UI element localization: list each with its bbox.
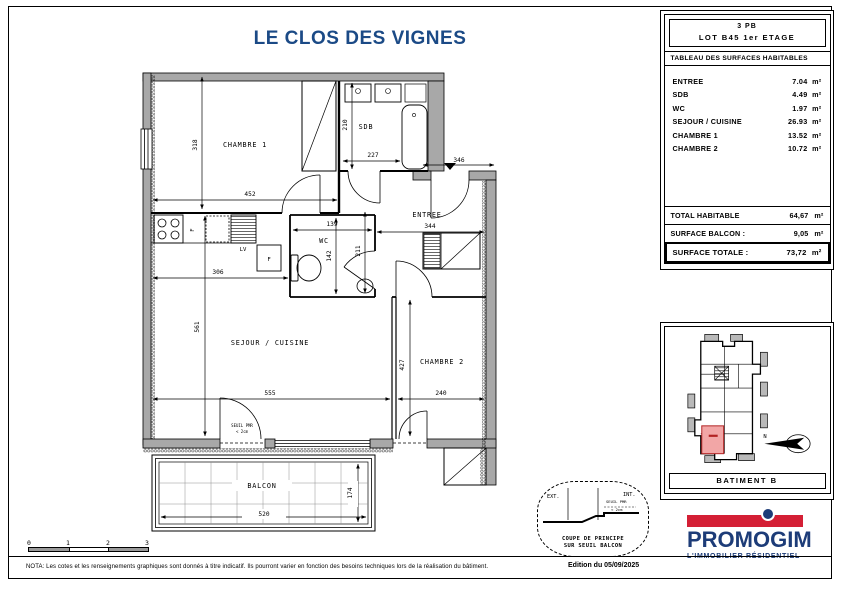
bathtub-icon: [402, 105, 427, 169]
scale-tick-3: 3: [145, 539, 149, 547]
dim-chambre2-width: 240: [435, 390, 446, 397]
washbasin-icon: [345, 84, 371, 102]
dim-sejour-height: 561: [194, 321, 201, 332]
exterior-walls: [143, 73, 496, 485]
coupe-note-2: < 2cm: [611, 507, 623, 512]
compass-icon: N: [763, 433, 810, 452]
seuil-note-1: SEUIL PMR: [231, 423, 253, 428]
stairwell-icon: [714, 366, 728, 380]
toilet-bowl-icon: [297, 255, 321, 281]
table-header: TABLEAU DES SURFACES HABITABLES: [665, 51, 830, 66]
scale-tick-1: 1: [66, 539, 70, 547]
scale-tick-2: 2: [106, 539, 110, 547]
scale-bar-labels: 0 1 2 3: [28, 539, 154, 547]
coupe-ext-label: EXT.: [547, 494, 560, 500]
coupe-int-label: INT.: [623, 492, 636, 498]
dim-wc-width: 139: [326, 221, 337, 228]
dim-sdb-width: 227: [367, 152, 378, 159]
table-row: WC 1.97 m²: [673, 102, 822, 116]
table-row: ENTREE 7.04 m²: [673, 75, 822, 89]
corner-structure: [444, 448, 486, 485]
total-habitable-row: TOTAL HABITABLE 64,67 m²: [665, 206, 830, 224]
page-title: LE CLOS DES VIGNES: [130, 28, 590, 50]
room-label-balcon: BALCON: [247, 482, 276, 490]
dim-entrance-door: 346: [453, 157, 464, 164]
surface-table-panel: 3 PB LOT B45 1er ETAGE TABLEAU DES SURFA…: [660, 10, 834, 270]
coupe-drawing: EXT. INT. SEUIL PMR < 2cm: [538, 485, 644, 531]
dim-balcon-height: 174: [347, 487, 354, 498]
chambre1-window: [141, 129, 152, 169]
oven-label: F: [190, 228, 196, 232]
sejour-window: [275, 439, 370, 448]
scale-bar-segments: [28, 547, 149, 552]
room-label-entree: ENTREE: [412, 211, 441, 219]
lot-header: 3 PB LOT B45 1er ETAGE: [669, 19, 826, 47]
room-label-sdb: SDB: [359, 123, 374, 131]
room-label-chambre2: CHAMBRE 2: [420, 358, 464, 366]
dim-entree-height: 211: [355, 245, 362, 256]
dishwasher-label: LV: [240, 247, 247, 253]
dim-balcon-width: 520: [258, 511, 269, 518]
surface-balcon-row: SURFACE BALCON : 9,05 m²: [665, 224, 830, 242]
dim-chambre1-width: 452: [244, 191, 255, 198]
scale-tick-0: 0: [27, 539, 31, 547]
totals-section: TOTAL HABITABLE 64,67 m² SURFACE BALCON …: [665, 206, 830, 263]
doors: [220, 163, 469, 443]
table-row: CHAMBRE 2 10.72 m²: [673, 142, 822, 156]
sdb-fixtures: [345, 84, 427, 169]
dim-wc-height: 142: [326, 250, 333, 261]
highlighted-unit: [701, 425, 723, 453]
coupe-detail: EXT. INT. SEUIL PMR < 2cm COUPE DE PRINC…: [537, 481, 649, 557]
footer-strip: NOTA: Les cotes et les renseignements gr…: [8, 556, 832, 579]
dim-cuisine-width: 306: [212, 269, 223, 276]
dim-sdb-height: 210: [342, 119, 349, 130]
entree-closet: [423, 233, 480, 269]
edition-date: Edition du 05/09/2025: [568, 562, 639, 569]
promogim-logo: PROMOGIM L'IMMOBILIER RÉSIDENTIEL: [687, 515, 803, 560]
coupe-note-1: SEUIL PMR: [606, 499, 627, 504]
oven-icon: [206, 216, 229, 242]
dim-chambre2-height: 427: [399, 359, 406, 370]
entrance-threshold-icon: [444, 163, 456, 170]
table-row: SDB 4.49 m²: [673, 88, 822, 102]
lot-type: 3 PB: [670, 23, 825, 30]
room-label-chambre1: CHAMBRE 1: [223, 141, 267, 149]
dim-entree-width: 344: [424, 223, 435, 230]
compass-north-label: N: [763, 433, 766, 439]
balcony: [152, 455, 375, 531]
table-row: CHAMBRE 1 13.52 m²: [673, 129, 822, 143]
kitchen-fixtures: [151, 215, 281, 271]
surface-rows: ENTREE 7.04 m² SDB 4.49 m² WC 1.97 m² SE…: [665, 66, 830, 156]
seuil-note-2: < 2cm: [236, 429, 249, 434]
coupe-caption-2: SUR SEUIL BALCON: [538, 543, 648, 550]
logo-red-bar: [687, 515, 803, 527]
logo-brand: PROMOGIM: [687, 529, 803, 551]
site-plan-panel: N BATIMENT B: [660, 322, 834, 500]
dishwasher-icon: [231, 215, 256, 243]
site-plan-map: N: [665, 327, 830, 473]
nota-text: NOTA: Les cotes et les renseignements gr…: [26, 564, 488, 570]
table-row: SEJOUR / CUISINE 26.93 m²: [673, 115, 822, 129]
surface-totale-row: SURFACE TOTALE : 73,72 m²: [665, 242, 830, 263]
room-label-sejour: SEJOUR / CUISINE: [231, 339, 309, 347]
dim-chambre1-height: 318: [192, 139, 199, 150]
logo-dot-icon: [761, 507, 775, 521]
batiment-caption: BATIMENT B: [669, 473, 826, 489]
room-label-wc: WC: [319, 237, 329, 245]
lot-number: LOT B45 1er ETAGE: [670, 33, 825, 42]
fridge-label: F: [267, 257, 271, 263]
scale-bar: 0 1 2 3: [28, 539, 154, 555]
dim-sejour-width: 555: [264, 390, 275, 397]
washbasin-icon: [375, 84, 401, 102]
